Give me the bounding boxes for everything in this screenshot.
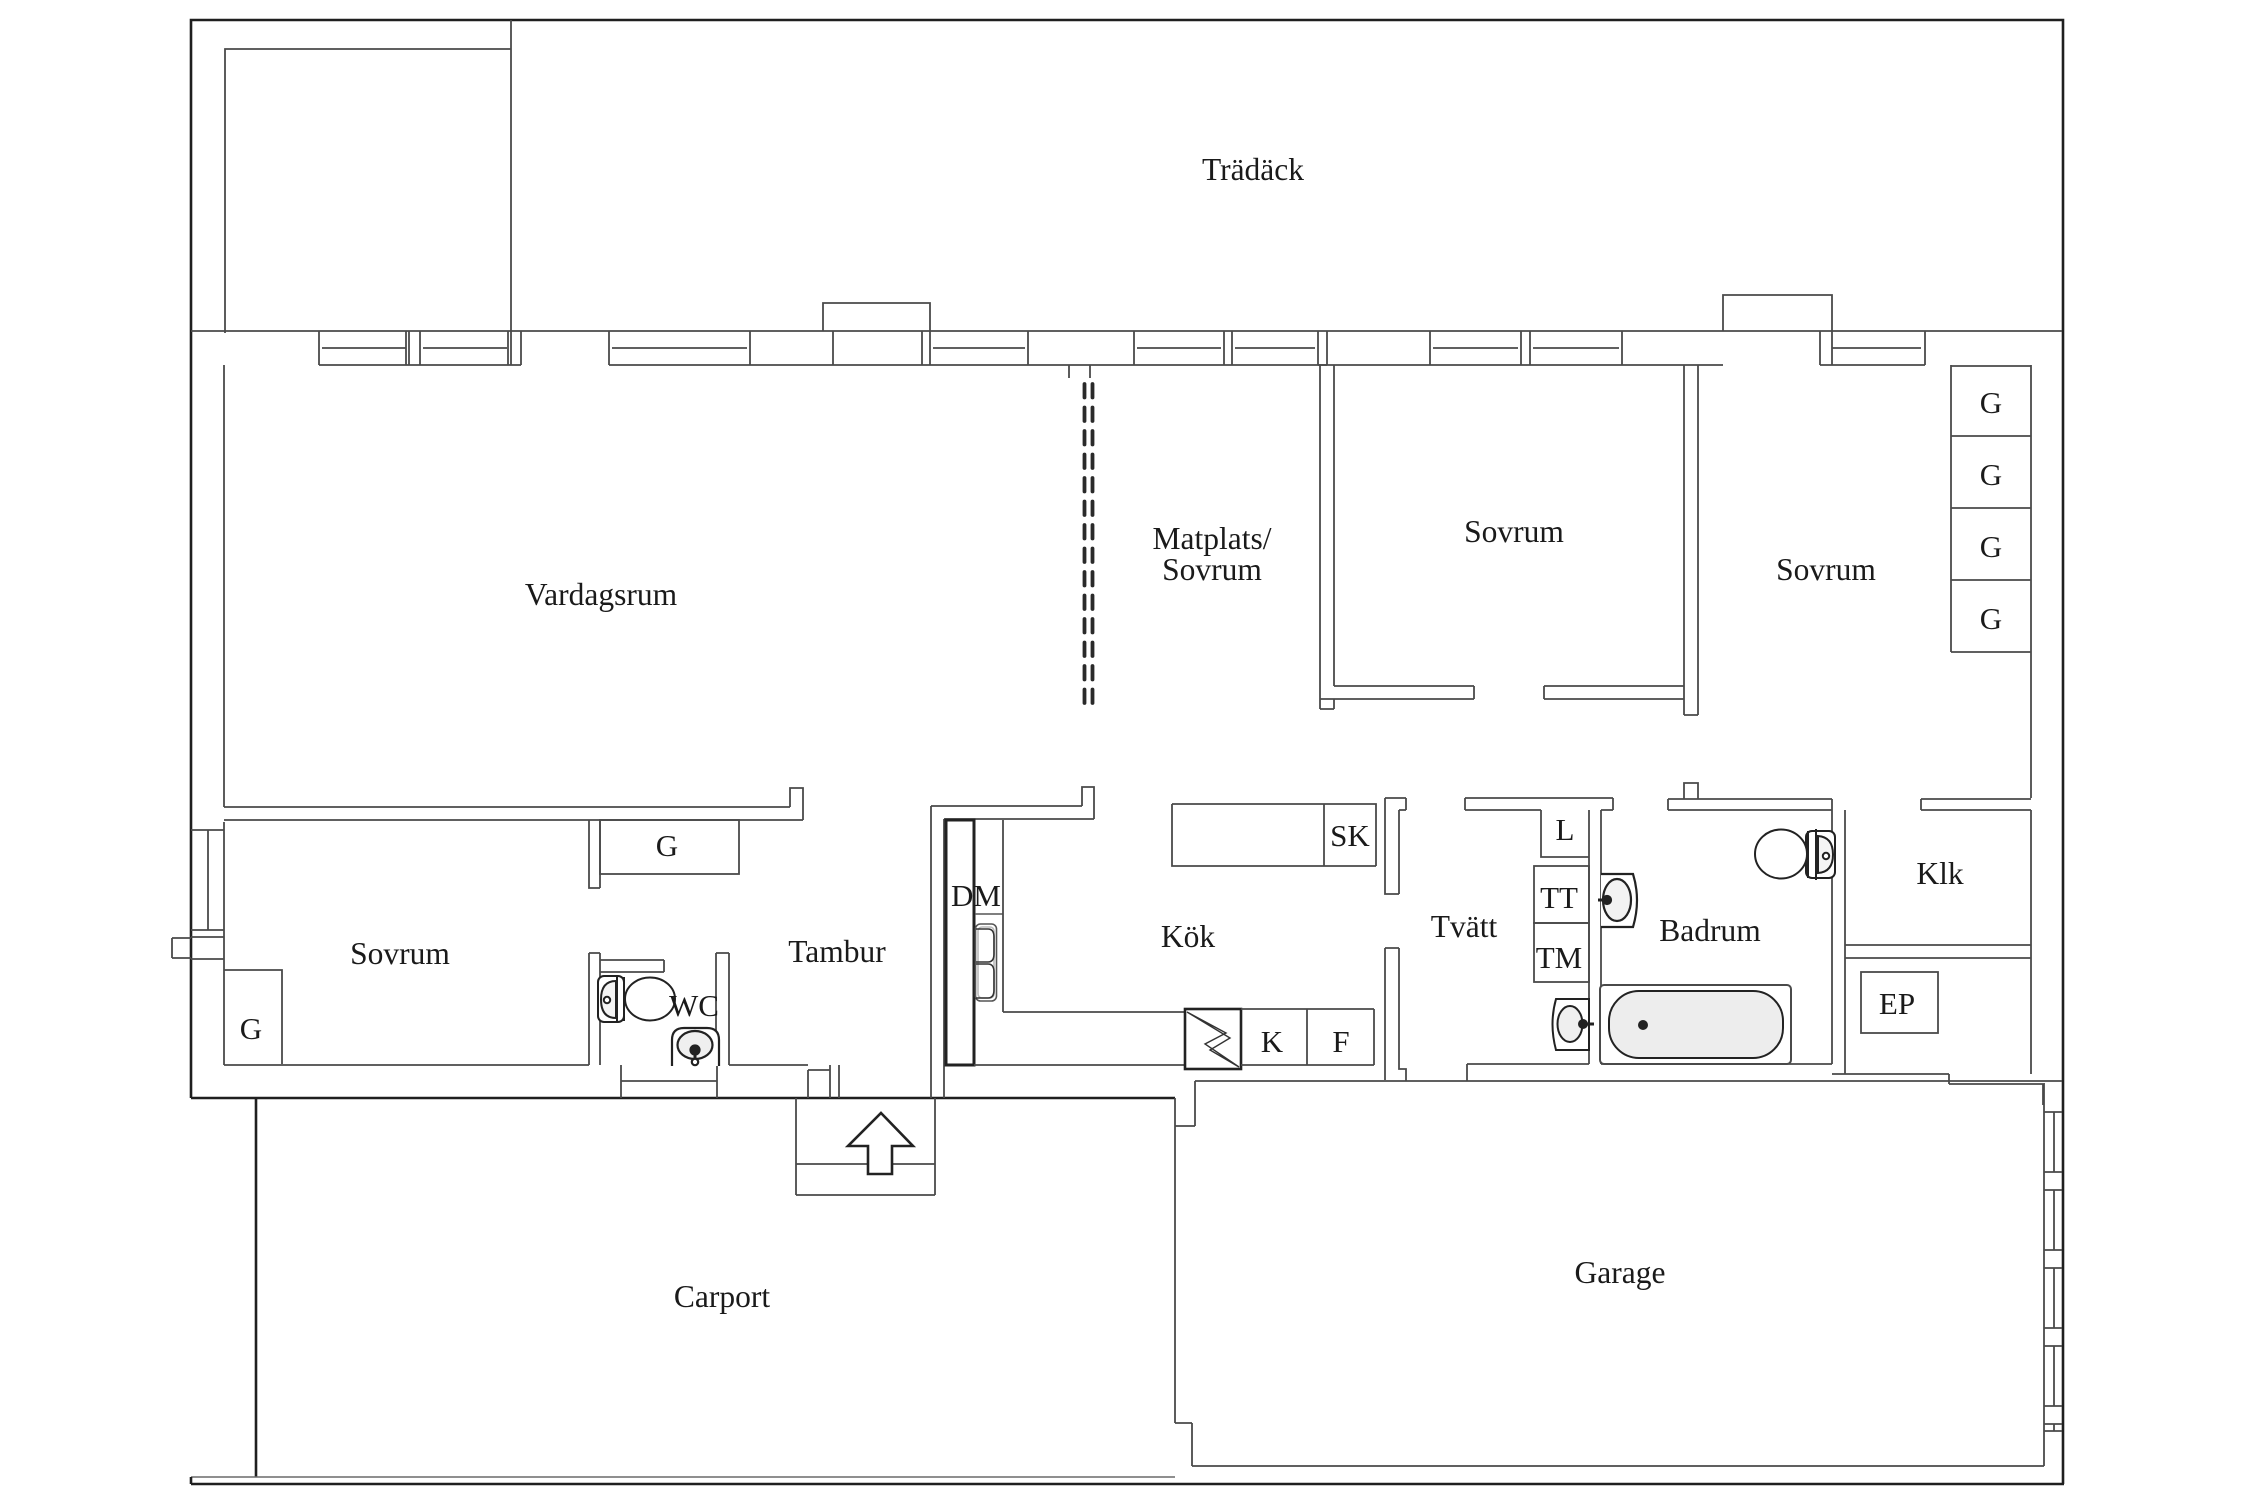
svg-text:Klk: Klk bbox=[1916, 856, 1964, 891]
svg-text:EP: EP bbox=[1879, 986, 1915, 1021]
svg-text:Garage: Garage bbox=[1575, 1255, 1666, 1290]
svg-text:Sovrum: Sovrum bbox=[1776, 552, 1876, 587]
svg-text:TT: TT bbox=[1540, 880, 1578, 915]
svg-text:G: G bbox=[1980, 601, 2002, 636]
svg-text:Matplats/: Matplats/ bbox=[1153, 521, 1272, 556]
svg-text:Vardagsrum: Vardagsrum bbox=[525, 577, 678, 612]
svg-text:G: G bbox=[1980, 385, 2002, 420]
svg-text:F: F bbox=[1332, 1024, 1349, 1059]
svg-text:Tvätt: Tvätt bbox=[1431, 909, 1498, 944]
svg-text:Tambur: Tambur bbox=[788, 934, 886, 969]
svg-text:SK: SK bbox=[1330, 818, 1370, 853]
svg-text:Sovrum: Sovrum bbox=[1464, 514, 1564, 549]
svg-text:G: G bbox=[656, 828, 678, 863]
svg-text:TM: TM bbox=[1536, 940, 1583, 975]
svg-text:G: G bbox=[1980, 457, 2002, 492]
svg-text:L: L bbox=[1556, 812, 1575, 847]
svg-text:DM: DM bbox=[951, 878, 1001, 913]
svg-text:G: G bbox=[240, 1011, 262, 1046]
svg-text:WC: WC bbox=[669, 988, 719, 1023]
svg-text:Carport: Carport bbox=[674, 1279, 770, 1314]
svg-text:G: G bbox=[1980, 529, 2002, 564]
svg-text:Sovrum: Sovrum bbox=[1162, 552, 1262, 587]
svg-text:Kök: Kök bbox=[1161, 919, 1215, 954]
svg-text:K: K bbox=[1261, 1024, 1284, 1059]
svg-text:Trädäck: Trädäck bbox=[1202, 152, 1304, 187]
svg-text:Badrum: Badrum bbox=[1659, 913, 1761, 948]
svg-text:Sovrum: Sovrum bbox=[350, 936, 450, 971]
